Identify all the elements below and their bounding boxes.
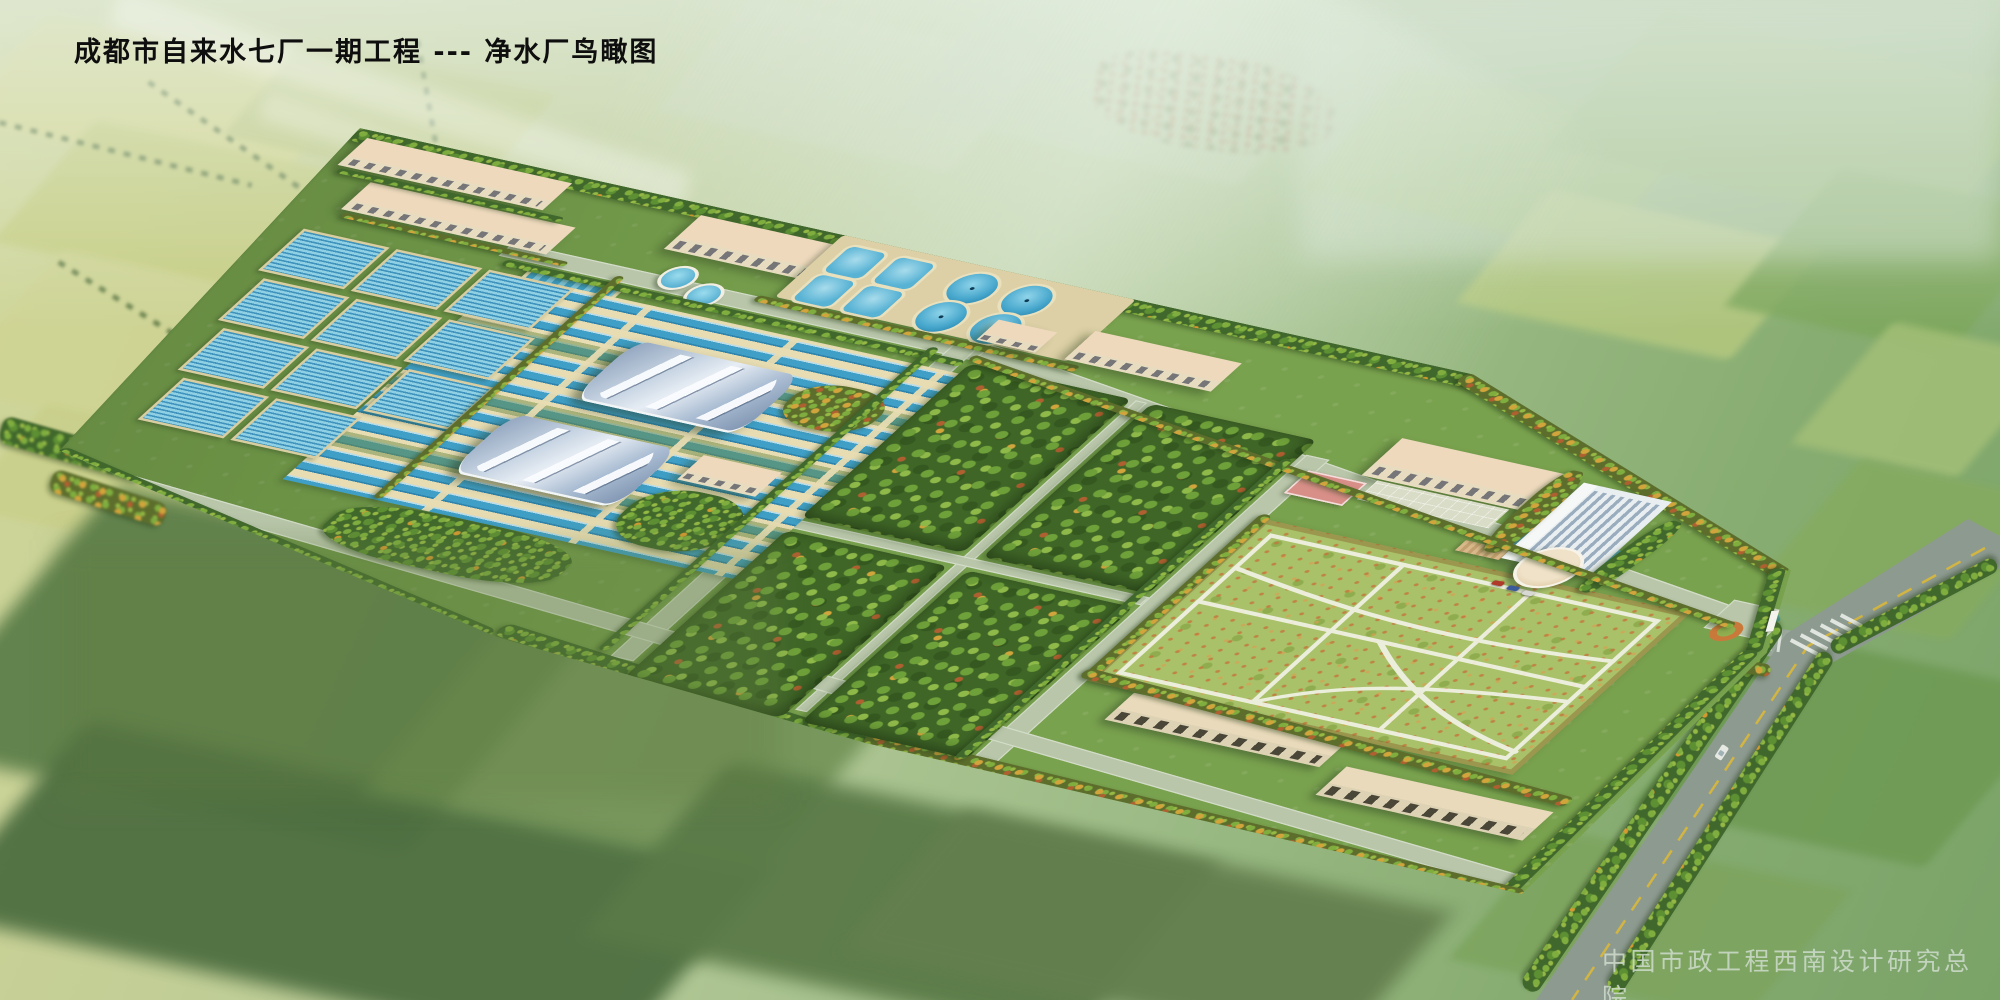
field-patch bbox=[1791, 322, 2000, 479]
page-title: 成都市自来水七厂一期工程 --- 净水厂鸟瞰图 bbox=[74, 30, 658, 69]
field-patch bbox=[1744, 459, 2000, 641]
rendering-canvas: 成都市自来水七厂一期工程 --- 净水厂鸟瞰图 中国市政工程西南设计研究总院 bbox=[0, 0, 2000, 1000]
designer-credit: 中国市政工程西南设计研究总院 bbox=[1602, 942, 2000, 1000]
